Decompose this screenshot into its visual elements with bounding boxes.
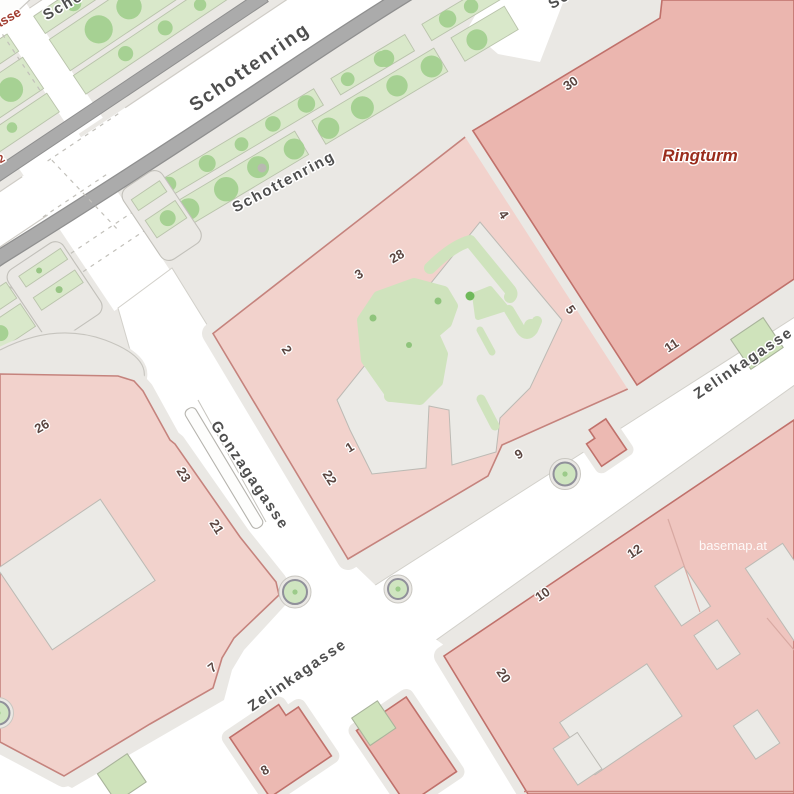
svg-text:Ringturm: Ringturm — [662, 146, 738, 165]
svg-text:basemap.at: basemap.at — [699, 538, 767, 553]
